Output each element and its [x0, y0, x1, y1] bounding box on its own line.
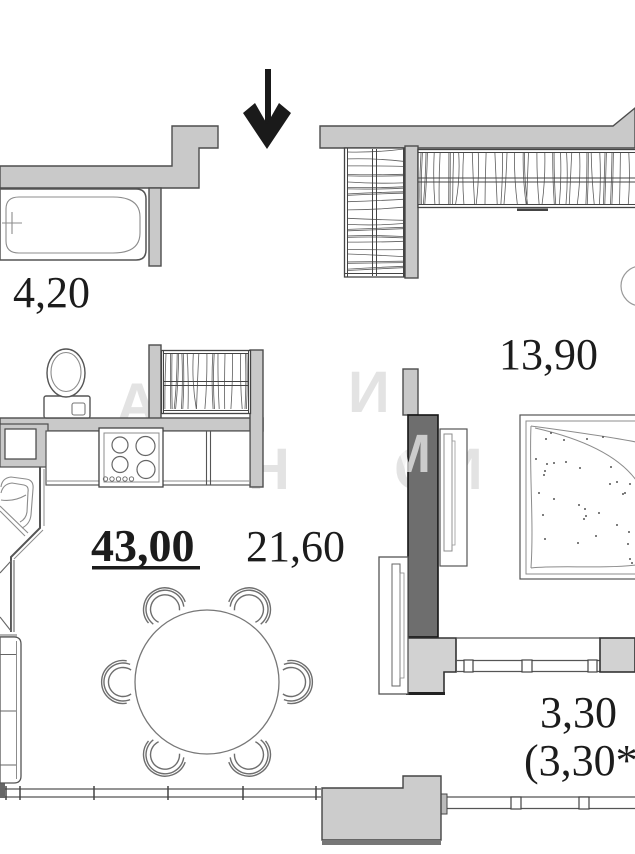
svg-text:М: М	[386, 424, 431, 484]
svg-text:21,60: 21,60	[246, 522, 345, 571]
svg-text:(3,30*): (3,30*)	[524, 736, 635, 785]
svg-text:4,20: 4,20	[13, 268, 90, 317]
svg-text:3,30: 3,30	[540, 688, 617, 737]
svg-text:И: И	[348, 360, 390, 425]
svg-text:13,90: 13,90	[499, 330, 598, 379]
svg-text:43,00: 43,00	[91, 520, 195, 571]
